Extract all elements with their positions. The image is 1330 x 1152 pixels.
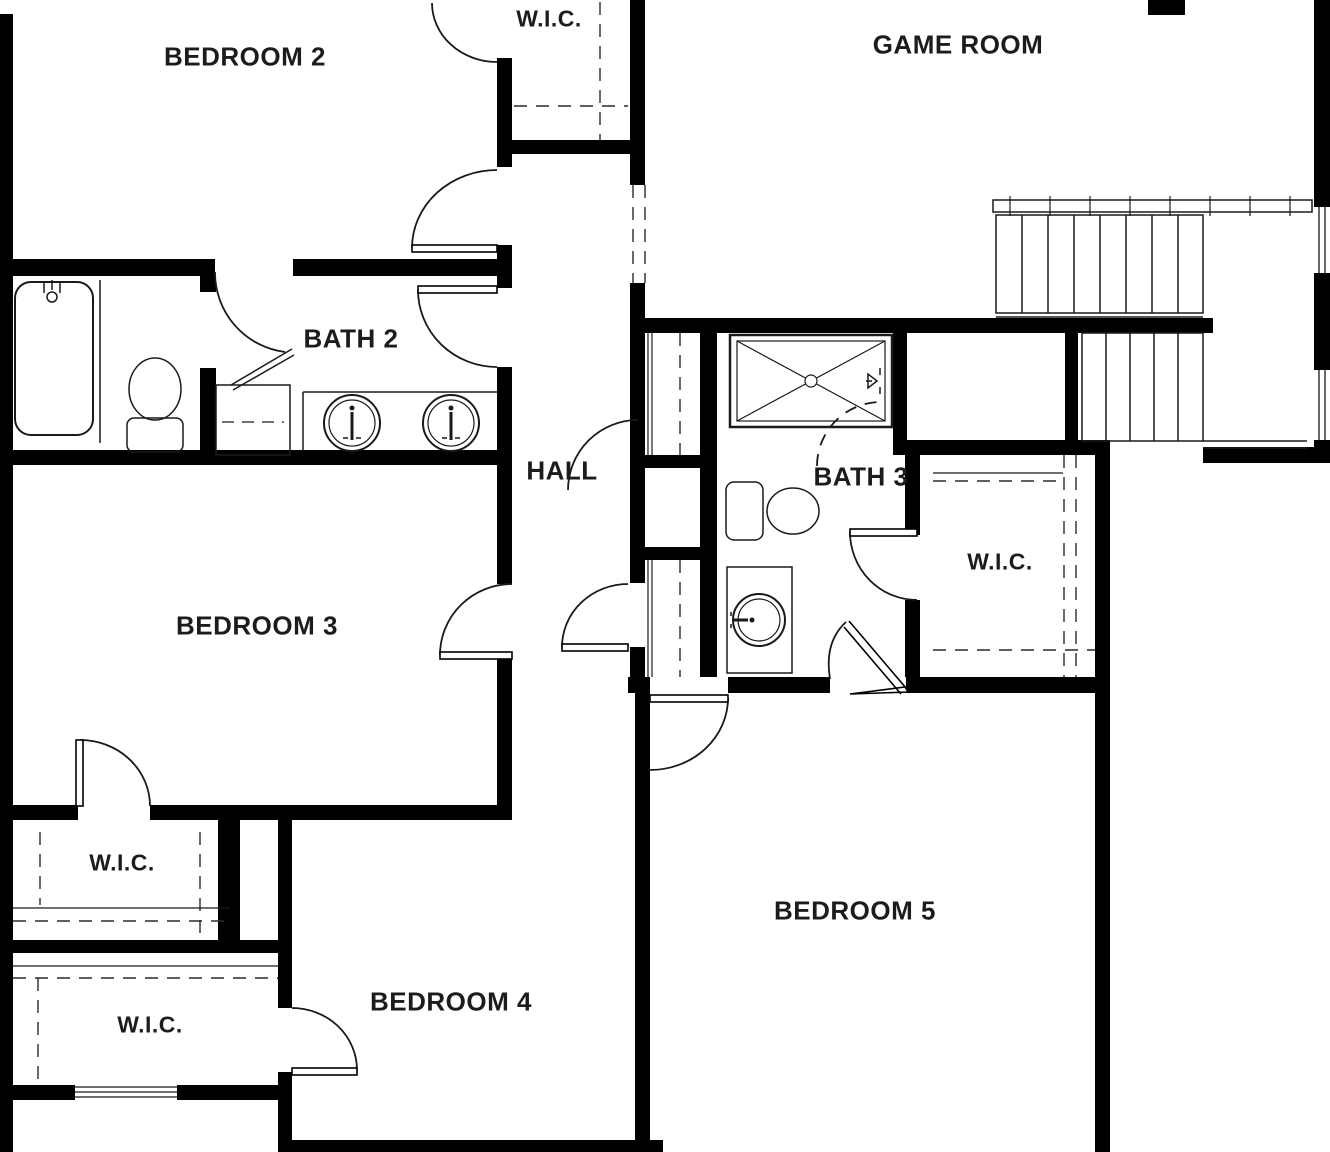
plan-background (0, 0, 1330, 1152)
room-label-bedroom-4: BEDROOM 4 (370, 987, 532, 1018)
room-label-wic-right: W.I.C. (967, 549, 1033, 576)
room-label-wic-left: W.I.C. (89, 850, 155, 877)
floor-plan: BEDROOM 2 W.I.C. GAME ROOM BATH 2 HALL B… (0, 0, 1330, 1152)
room-label-hall: HALL (526, 456, 597, 487)
room-label-wic-top: W.I.C. (516, 6, 582, 33)
room-label-bedroom-5: BEDROOM 5 (774, 896, 936, 927)
room-label-bath-2: BATH 2 (304, 324, 399, 355)
room-label-game-room: GAME ROOM (873, 30, 1044, 61)
room-label-bedroom-2: BEDROOM 2 (164, 42, 326, 73)
room-label-bath-3: BATH 3 (814, 462, 909, 493)
floor-plan-drawing (0, 0, 1330, 1152)
room-label-bedroom-3: BEDROOM 3 (176, 611, 338, 642)
room-label-wic-lower-left: W.I.C. (117, 1012, 183, 1039)
